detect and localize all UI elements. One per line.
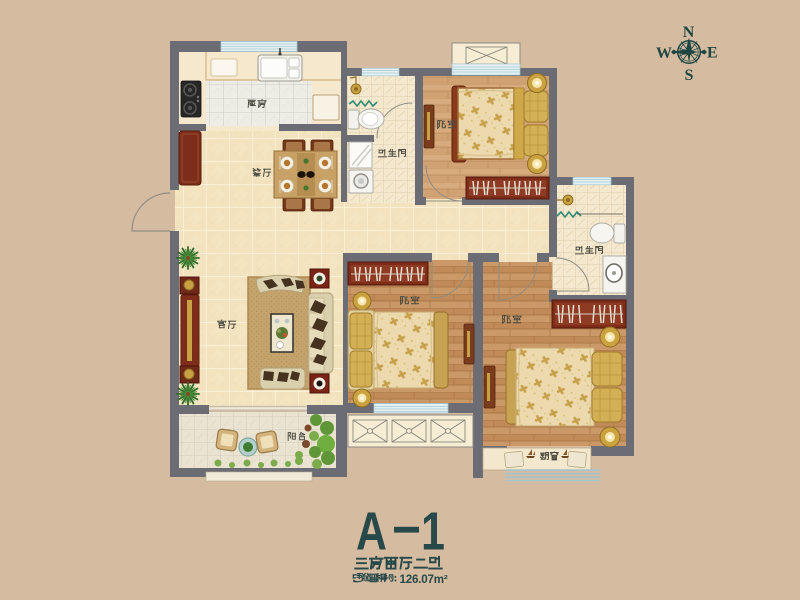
svg-text:1: 1 [421, 502, 445, 562]
svg-text:W: W [656, 45, 672, 62]
svg-text:E: E [707, 45, 718, 62]
svg-text:N: N [683, 24, 695, 41]
svg-text:126.07m²: 126.07m² [400, 573, 448, 586]
svg-text:S: S [685, 67, 694, 84]
svg-text:A: A [356, 502, 387, 562]
